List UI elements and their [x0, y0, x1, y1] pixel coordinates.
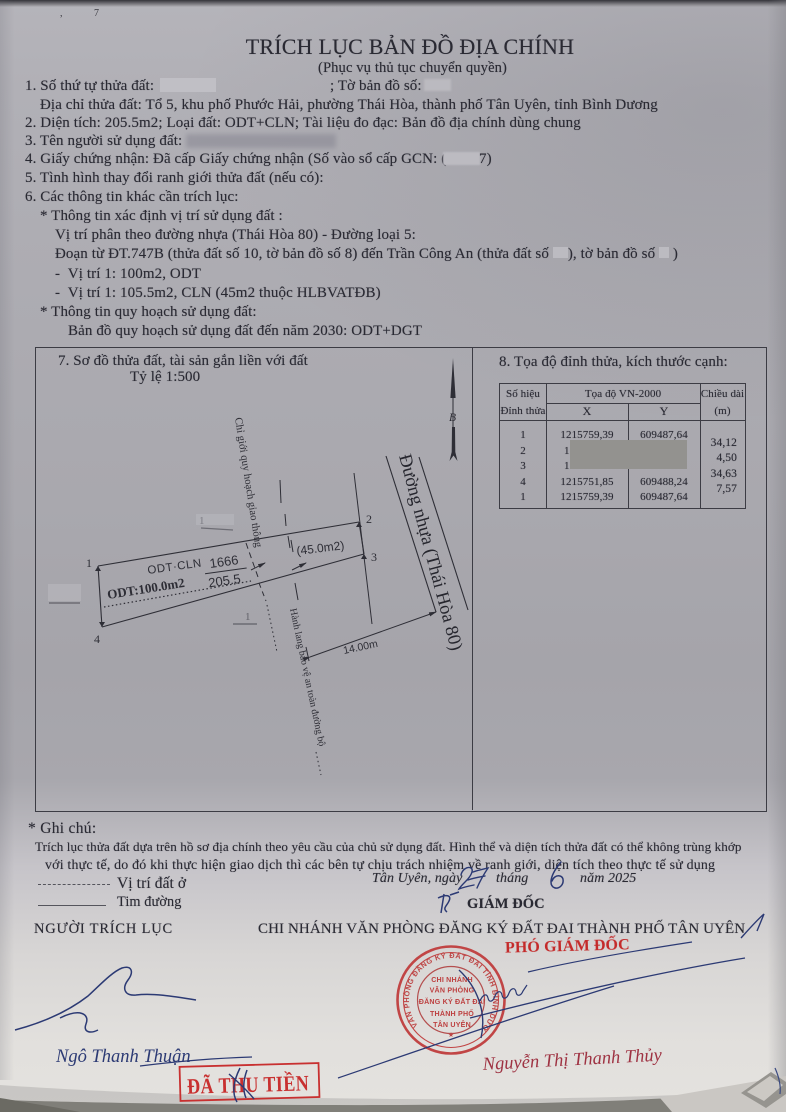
svg-text:VĂN PHÒNG ĐĂNG KÝ ĐẤT ĐAI TỈNH: VĂN PHÒNG ĐĂNG KÝ ĐẤT ĐAI TỈNH BÌNH DƯƠN… — [0, 0, 500, 1034]
svg-text:VĂN PHÒNG: VĂN PHÒNG — [430, 986, 475, 995]
svg-text:TÂN UYÊN: TÂN UYÊN — [433, 1020, 471, 1029]
svg-text:ĐÃ THU TIỀN: ĐÃ THU TIỀN — [187, 1070, 310, 1100]
svg-text:Nguyễn Thị Thanh Thủy: Nguyễn Thị Thanh Thủy — [481, 1046, 663, 1075]
svg-text:THÀNH PHỐ: THÀNH PHỐ — [430, 1008, 474, 1018]
svg-text:Ngô Thanh Thuận: Ngô Thanh Thuận — [55, 1047, 191, 1067]
svg-text:ĐĂNG KÝ ĐẤT ĐAI: ĐĂNG KÝ ĐẤT ĐAI — [419, 996, 485, 1006]
svg-text:CHI NHÁNH: CHI NHÁNH — [431, 975, 473, 984]
svg-text:★: ★ — [448, 1031, 454, 1039]
